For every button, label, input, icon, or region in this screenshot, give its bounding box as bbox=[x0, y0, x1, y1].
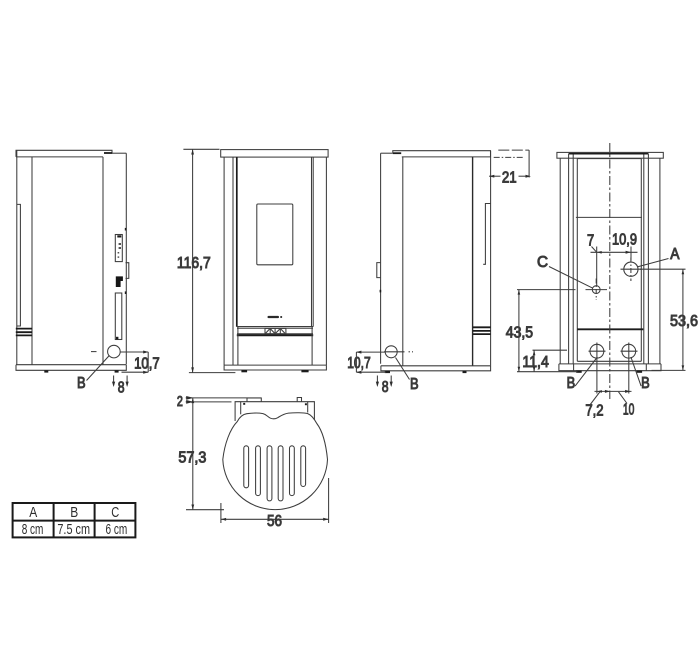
svg-text:21: 21 bbox=[502, 170, 517, 187]
svg-text:C: C bbox=[111, 504, 119, 521]
svg-text:11,4: 11,4 bbox=[522, 354, 548, 371]
svg-text:10: 10 bbox=[623, 401, 635, 418]
svg-text:B: B bbox=[641, 375, 650, 392]
svg-text:B: B bbox=[77, 375, 86, 392]
svg-text:2: 2 bbox=[177, 394, 183, 410]
svg-text:C: C bbox=[537, 254, 548, 271]
svg-text:10,7: 10,7 bbox=[134, 355, 160, 372]
svg-text:8: 8 bbox=[118, 380, 125, 397]
svg-text:116,7: 116,7 bbox=[177, 255, 211, 272]
svg-text:10,7: 10,7 bbox=[347, 355, 371, 372]
svg-text:10,9: 10,9 bbox=[612, 232, 637, 249]
svg-text:B: B bbox=[567, 375, 576, 392]
svg-text:43,5: 43,5 bbox=[506, 325, 533, 342]
svg-text:7: 7 bbox=[587, 232, 594, 249]
svg-text:6 cm: 6 cm bbox=[106, 522, 128, 538]
svg-text:B: B bbox=[70, 504, 78, 521]
svg-text:7,2: 7,2 bbox=[585, 402, 603, 419]
svg-text:8 cm: 8 cm bbox=[22, 522, 44, 538]
svg-text:B: B bbox=[410, 376, 419, 393]
svg-text:7.5 cm: 7.5 cm bbox=[57, 522, 90, 538]
svg-text:8: 8 bbox=[382, 379, 389, 396]
svg-text:A: A bbox=[670, 246, 680, 263]
svg-text:56: 56 bbox=[267, 513, 282, 530]
svg-text:53,6: 53,6 bbox=[670, 313, 698, 330]
svg-text:A: A bbox=[29, 504, 37, 521]
